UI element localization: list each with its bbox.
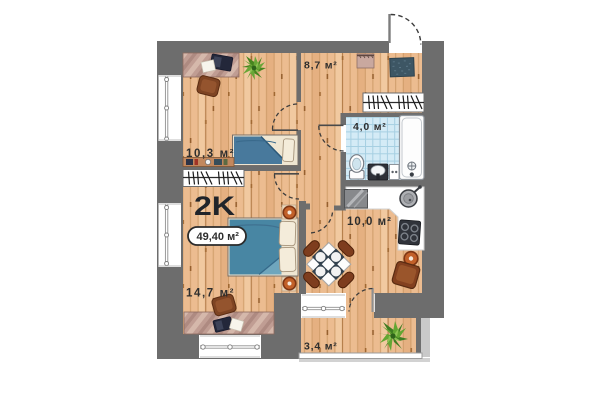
svg-text:14,7 м²: 14,7 м² xyxy=(186,288,235,300)
svg-text:10,3 м²: 10,3 м² xyxy=(186,148,235,160)
svg-text:4,0 м²: 4,0 м² xyxy=(353,121,387,133)
svg-text:8,7 м²: 8,7 м² xyxy=(304,60,338,72)
svg-text:49,40 м²: 49,40 м² xyxy=(197,231,240,243)
svg-text:10,0 м²: 10,0 м² xyxy=(347,216,392,228)
svg-text:3,4 м²: 3,4 м² xyxy=(304,341,338,353)
svg-text:2K: 2K xyxy=(194,191,236,221)
